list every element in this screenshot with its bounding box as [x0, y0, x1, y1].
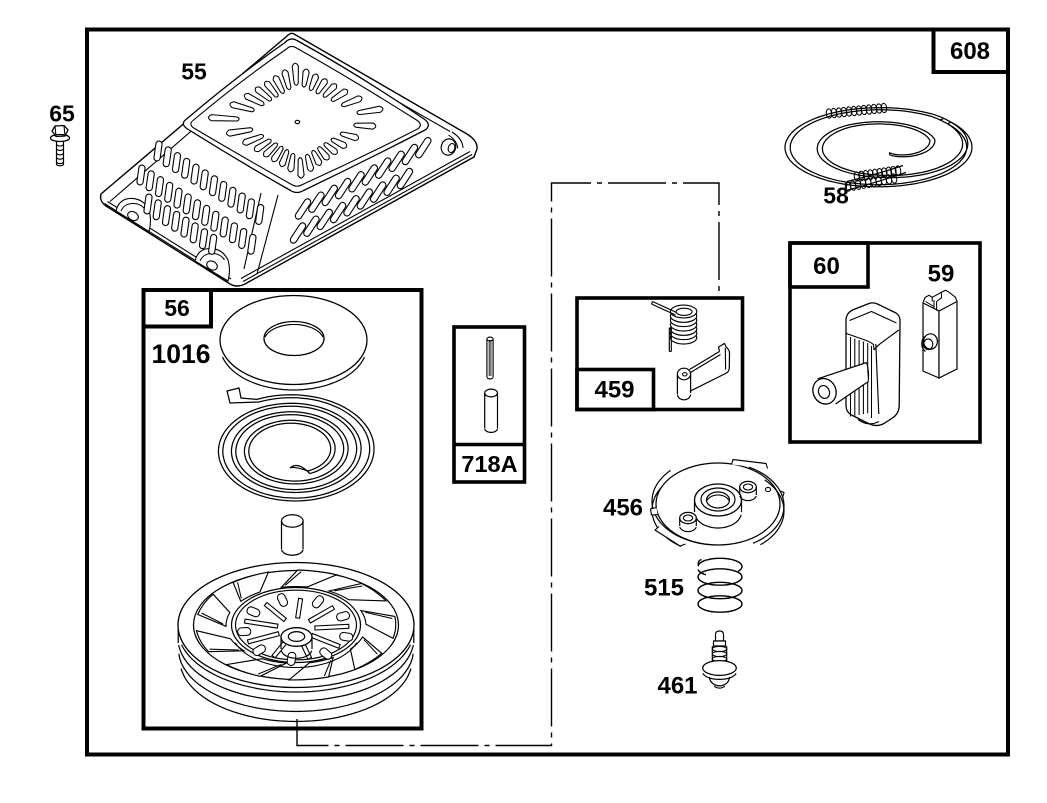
svg-text:456: 456 — [603, 495, 643, 522]
svg-text:461: 461 — [657, 673, 697, 700]
svg-text:59: 59 — [928, 261, 955, 288]
svg-text:56: 56 — [164, 295, 190, 321]
svg-text:459: 459 — [594, 377, 634, 404]
svg-text:55: 55 — [181, 59, 207, 85]
svg-text:718A: 718A — [461, 451, 517, 477]
svg-text:65: 65 — [49, 101, 75, 127]
svg-text:60: 60 — [813, 253, 840, 280]
svg-text:515: 515 — [644, 575, 684, 602]
svg-text:1016: 1016 — [152, 339, 211, 369]
svg-text:608: 608 — [950, 38, 990, 65]
